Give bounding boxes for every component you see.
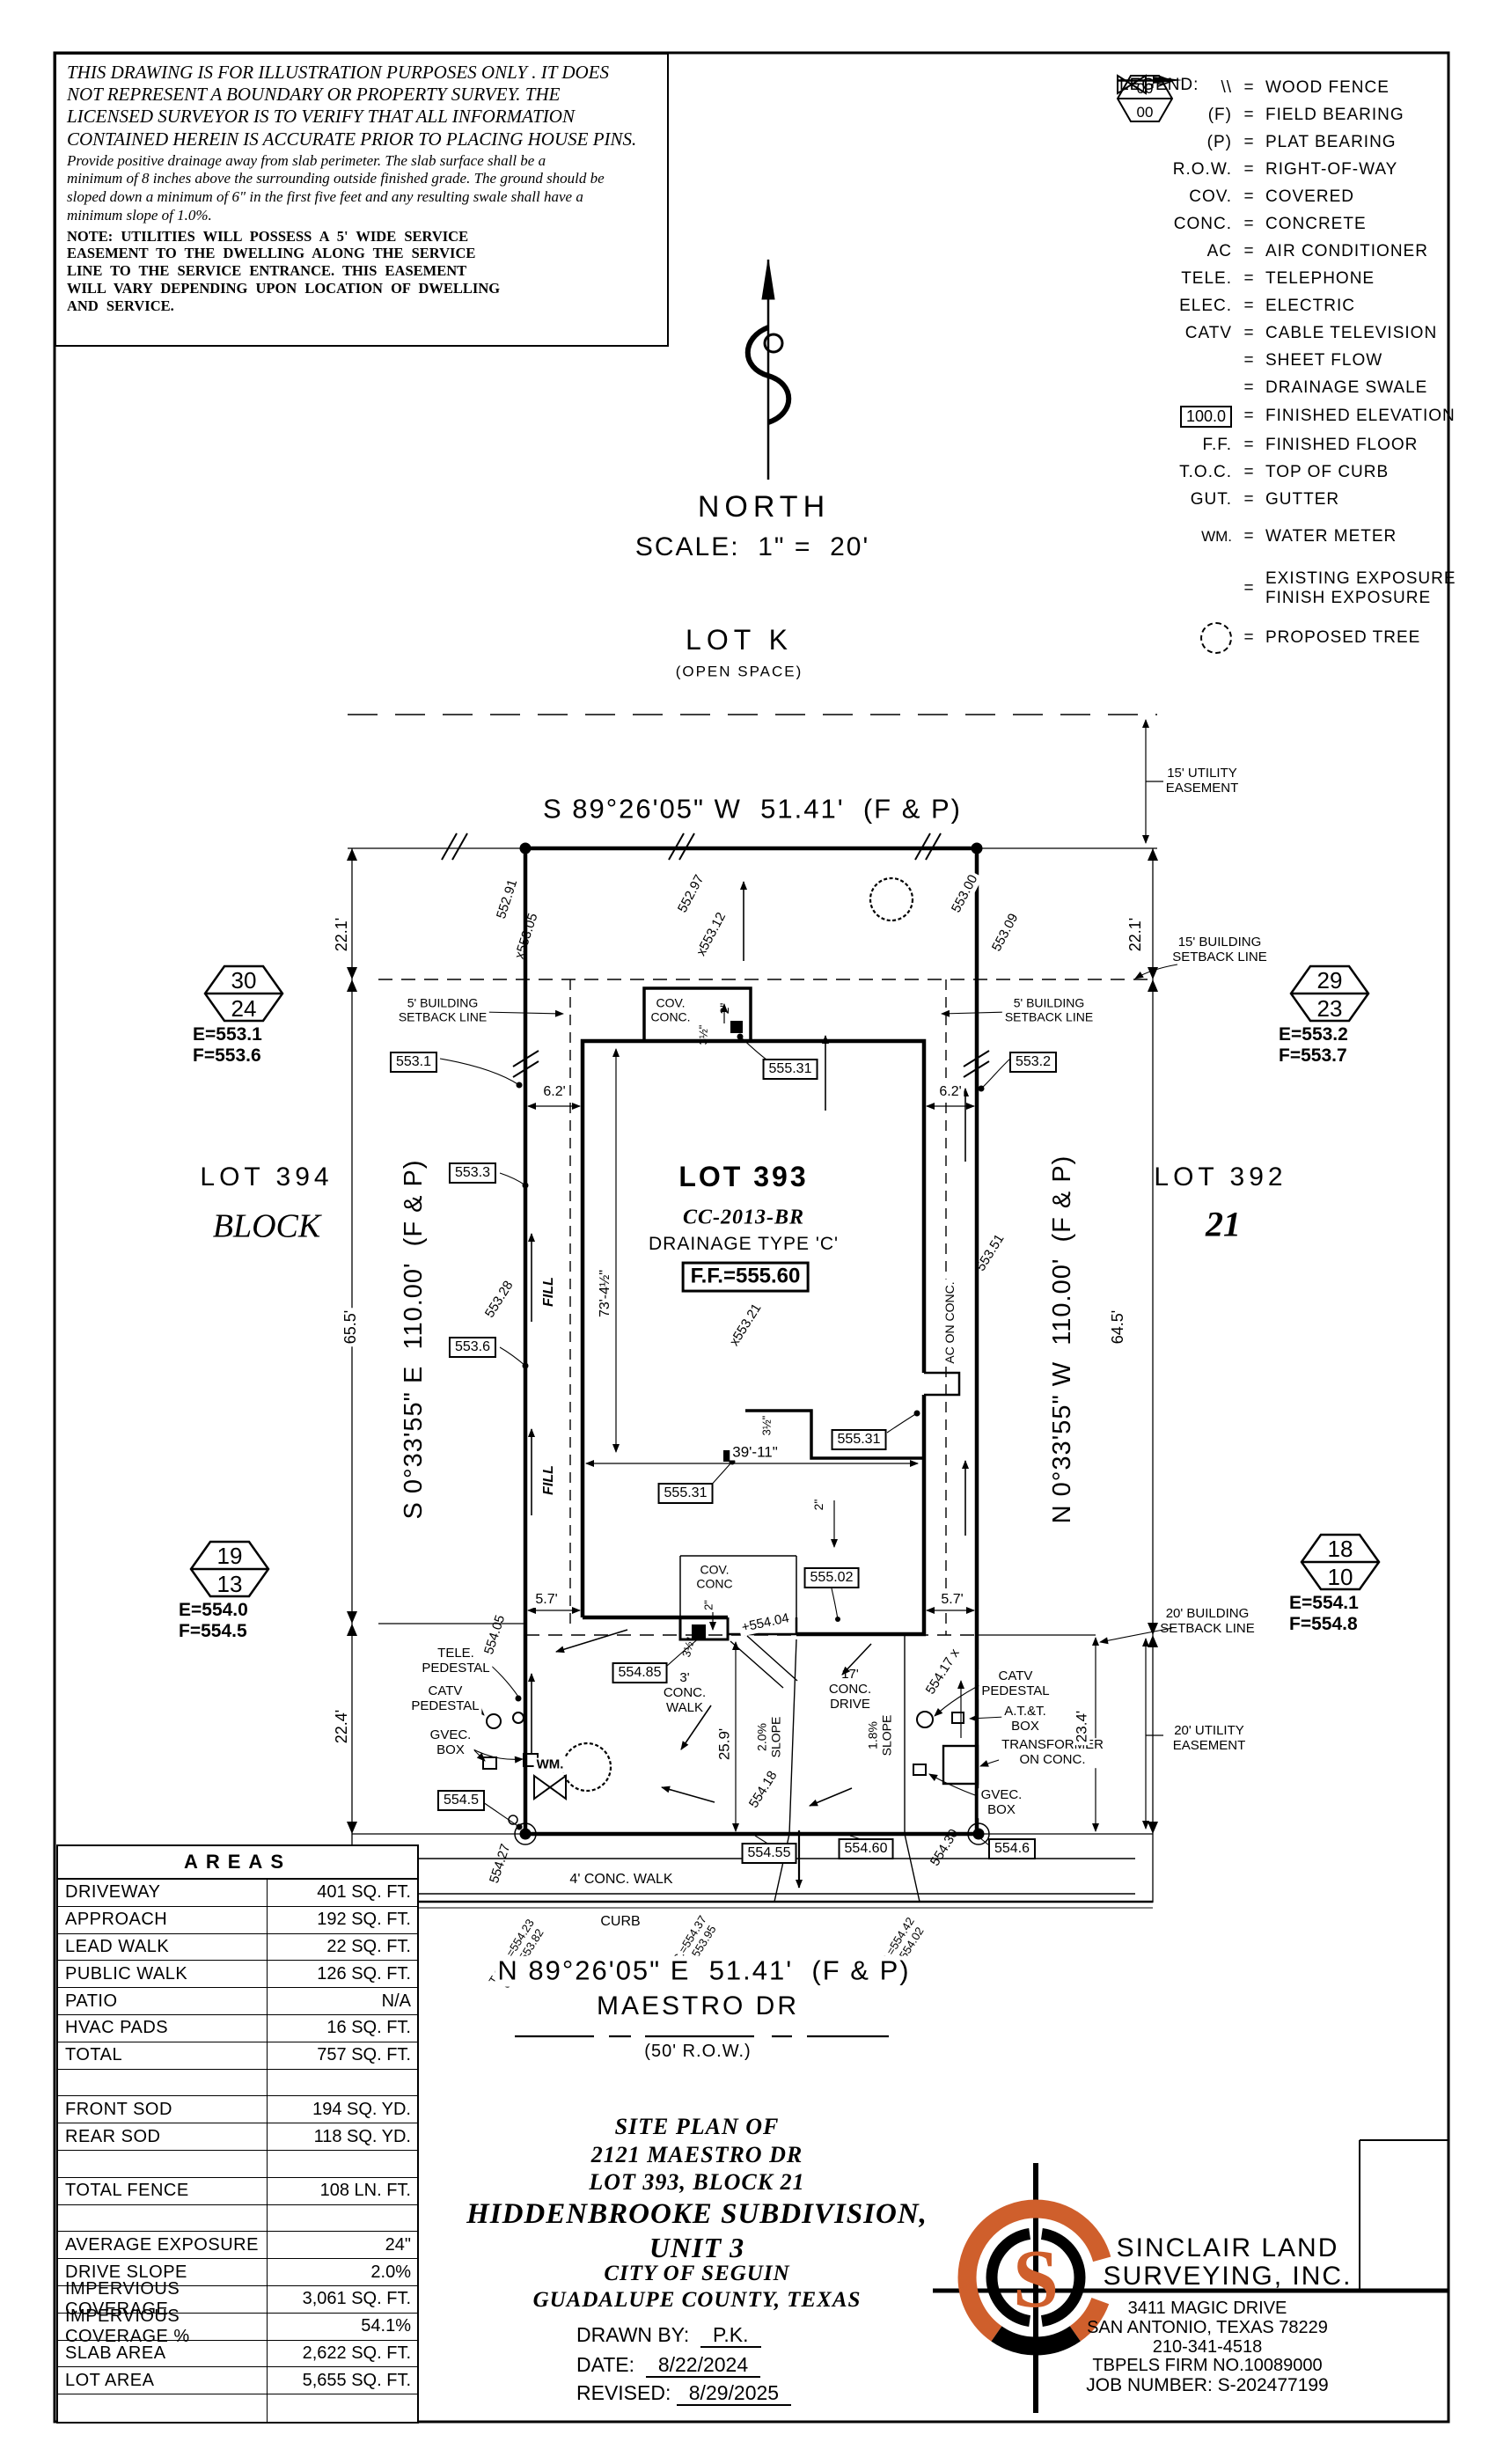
dim-65-5: 65.5' [341, 1308, 359, 1346]
areas-row-driveway: DRIVEWAY401 SQ. FT. [58, 1880, 417, 1907]
leader-dots [516, 1034, 985, 1830]
firm-phone: 210-341-4518 [1153, 2337, 1263, 2358]
house-outline [583, 988, 959, 1639]
areas-row-total-fence: TOTAL FENCE108 LN. FT. [58, 2178, 417, 2205]
svg-text:29: 29 [1317, 967, 1343, 994]
title-address: 2121 MAESTRO DR [591, 2142, 803, 2168]
spot-555-31-east: 555.31 [832, 1429, 887, 1450]
areas-row-blank-19 [58, 2394, 417, 2422]
spot-554-5: 554.5 [437, 1790, 485, 1811]
date-label: DATE: [576, 2353, 634, 2376]
title-county: GUADALUPE COUNTY, TEXAS [533, 2288, 862, 2313]
spot-553-3: 553.3 [449, 1162, 496, 1184]
areas-row-lead-walk: LEAD WALK22 SQ. FT. [58, 1934, 417, 1962]
drainage-type: DRAINAGE TYPE 'C' [649, 1234, 839, 1255]
bearing-south: N 89°26'05" E 51.41' (F & P) [495, 1956, 913, 1987]
wm-label: WM. [534, 1758, 567, 1773]
legend-row-5: CONC.=CONCRETE [1116, 210, 1461, 238]
slope-1-8: 1.8% SLOPE [866, 1712, 893, 1759]
conc-drive-17-label: 17' CONC. DRIVE [829, 1668, 871, 1712]
dim-2in-mid: 2" [812, 1500, 826, 1511]
conc-walk-3-label: 3' CONC. WALK [664, 1671, 706, 1715]
row-50-label: (50' R.O.W.) [642, 2042, 753, 2061]
revised-row: REVISED: 8/29/2025 [576, 2381, 791, 2405]
areas-row-impervious-coverage-: IMPERVIOUS COVERAGE %54.1% [58, 2314, 417, 2341]
legend-row-18: =PROPOSED TREE [1116, 617, 1461, 659]
water-meter-icon [534, 1776, 566, 1799]
drawn-by-row: DRAWN BY: P.K. [576, 2323, 761, 2347]
att-box-label: A.T.&T. BOX [1001, 1705, 1049, 1734]
legend-row-10: =SHEET FLOW [1116, 347, 1461, 374]
date-value: 8/22/2024 [646, 2353, 760, 2378]
firm-tbpels-number: TBPELS FIRM NO.10089000 [1092, 2356, 1322, 2376]
spot-555-02: 555.02 [804, 1567, 860, 1588]
lot-392-label: LOT 392 [1154, 1162, 1287, 1192]
dim-2in-front: 2" [703, 1600, 716, 1610]
bearing-east: N 0°33'55" W 110.00' (F & P) [1048, 1153, 1076, 1527]
dim-22-1-east: 22.1' [1126, 915, 1144, 954]
areas-row-average-exposure: AVERAGE EXPOSURE24" [58, 2232, 417, 2259]
site-plan-sheet: S THIS DRAWING IS FOR ILLUSTRATION PURPO… [0, 0, 1496, 2464]
building-setback-5-west-label: 5' BUILDING SETBACK LINE [396, 996, 489, 1023]
cov-conc-front-label: COV. CONC [696, 1563, 732, 1590]
lot-marker-29-23-elevations: E=553.2 F=553.7 [1279, 1024, 1348, 1067]
areas-row-slab-area: SLAB AREA2,622 SQ. FT. [58, 2341, 417, 2368]
fill-label-1: FILL [541, 1274, 557, 1309]
legend-row-11: =DRAINAGE SWALE [1116, 374, 1461, 401]
dim-22-1-west: 22.1' [333, 915, 350, 954]
legend-row-4: COV.=COVERED [1116, 183, 1461, 210]
open-space-label: (OPEN SPACE) [676, 663, 803, 679]
legend-row-13: F.F.=FINISHED FLOOR [1116, 431, 1461, 458]
bearing-west: S 0°33'55" E 110.00' (F & P) [400, 1156, 428, 1522]
title-subdivision: HIDDENBROOKE SUBDIVISION, [466, 2198, 928, 2231]
spot-554-60: 554.60 [839, 1838, 894, 1859]
dim-3half-rear: 3½" [698, 1025, 711, 1045]
legend-row-2: (P)=PLAT BEARING [1116, 128, 1461, 156]
lot-393-label: LOT 393 [678, 1162, 808, 1193]
areas-row-hvac-pads: HVAC PADS16 SQ. FT. [58, 2015, 417, 2042]
firm-address-line-2: SAN ANTONIO, TEXAS 78229 [1087, 2318, 1328, 2338]
sheet-flow-arrows [532, 882, 965, 1888]
revised-label: REVISED: [576, 2381, 671, 2404]
lot-marker-30-24-elevations: E=553.1 F=553.6 [193, 1024, 262, 1067]
svg-text:30: 30 [231, 967, 257, 994]
areas-row-patio: PATION/A [58, 1988, 417, 2015]
building-setback-15-label: 15' BUILDING SETBACK LINE [1172, 935, 1267, 965]
utility-easement-15-label: 15' UTILITY EASEMENT [1166, 766, 1239, 796]
svg-text:23: 23 [1317, 995, 1343, 1022]
dim-2in-rear: 2" [718, 1003, 732, 1015]
dim-6-2-west: 6.2' [540, 1084, 568, 1100]
lot-k-label: LOT K [686, 625, 793, 656]
catv-pedestal-east-label: CATV PEDESTAL [979, 1669, 1052, 1699]
hexagon-icon: 3024 [203, 964, 284, 1023]
legend-row-14: T.O.C.=TOP OF CURB [1116, 458, 1461, 486]
dim-22-4: 22.4' [333, 1707, 350, 1746]
areas-row-lot-area: LOT AREA5,655 SQ. FT. [58, 2367, 417, 2394]
date-row: DATE: 8/22/2024 [576, 2353, 760, 2377]
catv-pedestal-west-label: CATV PEDESTAL [408, 1684, 481, 1714]
lot-394-label: LOT 394 [200, 1162, 333, 1192]
areas-table-title: AREAS [58, 1846, 417, 1880]
transformer-label: TRANSFORMER ON CONC. [999, 1738, 1106, 1768]
cov-conc-rear-label: COV. CONC. [650, 996, 690, 1023]
areas-row-approach: APPROACH192 SQ. FT. [58, 1907, 417, 1934]
gvec-box-west-label: GVEC. BOX [428, 1728, 474, 1758]
svg-text:18: 18 [1328, 1536, 1353, 1562]
disclaimer-paragraph-2: Provide positive drainage away from slab… [67, 152, 656, 225]
north-label: NORTH [698, 490, 830, 524]
legend: LEGEND: \\=WOOD FENCE(F)=FIELD BEARING(P… [1116, 74, 1461, 659]
disclaimer-note: NOTE: UTILITIES WILL POSSESS A 5' WIDE S… [67, 228, 656, 315]
legend-row-16: WM.=WATER METER [1116, 513, 1461, 561]
areas-table: AREAS DRIVEWAY401 SQ. FT.APPROACH192 SQ.… [56, 1844, 419, 2424]
lot-marker-19-13-elevations: E=554.0 F=554.5 [179, 1600, 248, 1642]
areas-row-rear-sod: REAR SOD118 SQ. YD. [58, 2123, 417, 2151]
areas-row-blank-10 [58, 2151, 417, 2178]
areas-row-blank-7 [58, 2070, 417, 2097]
spot-554-85: 554.85 [612, 1662, 668, 1683]
spot-554-55: 554.55 [742, 1843, 797, 1864]
svg-text:19: 19 [217, 1543, 243, 1569]
spot-553-6: 553.6 [449, 1337, 496, 1358]
utility-easement-20-label: 20' UTILITY EASEMENT [1173, 1724, 1246, 1754]
proposed-tree-icon [1200, 622, 1232, 654]
firm-name-line-2: SURVEYING, INC. [1104, 2262, 1353, 2292]
ff-elevation: F.F.=555.60 [682, 1262, 810, 1293]
legend-row-15: GUT.=GUTTER [1116, 486, 1461, 513]
svg-text:10: 10 [1328, 1564, 1353, 1590]
building-setback-5-east-label: 5' BUILDING SETBACK LINE [1002, 996, 1096, 1023]
title-site-plan-of: SITE PLAN OF [615, 2114, 780, 2140]
proposed-tree-rear-icon [870, 878, 913, 920]
revised-value: 8/29/2025 [677, 2381, 791, 2406]
proposed-tree-front-icon [563, 1743, 611, 1791]
legend-row-6: AC=AIR CONDITIONER [1116, 238, 1461, 265]
dim-25-9: 25.9' [715, 1726, 732, 1763]
dim-3half-step: 3½" [761, 1416, 774, 1436]
dim-6-2-east: 6.2' [936, 1084, 964, 1100]
areas-row-blank-12 [58, 2205, 417, 2233]
logo-s-letter: S [1013, 2233, 1059, 2325]
hexagon-icon: 1810 [1300, 1533, 1381, 1591]
fill-label-2: FILL [541, 1463, 557, 1498]
north-arrow [748, 260, 789, 480]
disclaimer-paragraph-1: THIS DRAWING IS FOR ILLUSTRATION PURPOSE… [67, 62, 656, 150]
svg-text:13: 13 [217, 1571, 243, 1597]
title-unit: UNIT 3 [649, 2232, 744, 2264]
dim-23-4: 23.4' [1073, 1708, 1089, 1745]
curb-label: CURB [598, 1914, 642, 1930]
title-city: CITY OF SEGUIN [604, 2262, 789, 2286]
firm-job-number: JOB NUMBER: S-202477199 [1086, 2375, 1328, 2396]
svg-text:24: 24 [231, 995, 257, 1022]
drawn-by-value: P.K. [700, 2323, 761, 2348]
legend-row-9: CATV=CABLE TELEVISION [1116, 319, 1461, 347]
transformer-icon [943, 1746, 978, 1784]
maestro-dr-label: MAESTRO DR [594, 1991, 802, 2021]
dim-39-11: 39'-11" [730, 1443, 781, 1460]
legend-row-7: TELE.=TELEPHONE [1116, 265, 1461, 292]
block-21-label: 21 [1206, 1206, 1241, 1245]
building-setback-20-label: 20' BUILDING SETBACK LINE [1160, 1607, 1255, 1637]
ac-on-conc-label: AC ON CONC. [943, 1279, 957, 1366]
slope-2-0: 2.0% SLOPE [755, 1714, 782, 1761]
exposure-hexagon-icon: 0000 [1116, 74, 1174, 123]
bearing-north: S 89°26'05" W 51.41' (F & P) [540, 795, 964, 825]
dim-5-7-east: 5.7' [938, 1592, 965, 1608]
hexagon-icon: 2923 [1289, 964, 1370, 1023]
dim-5-7-west: 5.7' [532, 1592, 560, 1608]
gvec-box-east-label: GVEC. BOX [979, 1788, 1025, 1818]
drawn-by-label: DRAWN BY: [576, 2323, 689, 2346]
svg-text:00: 00 [1137, 80, 1154, 97]
spot-553-1: 553.1 [390, 1052, 437, 1073]
lot-marker-18-10-elevations: E=554.1 F=554.8 [1289, 1593, 1359, 1635]
areas-row-front-sod: FRONT SOD194 SQ. YD. [58, 2096, 417, 2123]
legend-row-8: ELEC.=ELECTRIC [1116, 292, 1461, 319]
cc-2013-br: CC-2013-BR [683, 1206, 804, 1230]
water-meter-icon: WM. [1201, 528, 1232, 546]
conc-walk-4-label: 4' CONC. WALK [567, 1872, 675, 1888]
disclaimer-box: THIS DRAWING IS FOR ILLUSTRATION PURPOSE… [55, 53, 669, 347]
block-label: BLOCK [213, 1208, 320, 1246]
firm-address-line-1: 3411 MAGIC DRIVE [1128, 2299, 1287, 2319]
title-lot-block: LOT 393, BLOCK 21 [589, 2169, 804, 2196]
spot-555-31-center: 555.31 [658, 1483, 714, 1504]
areas-row-public-walk: PUBLIC WALK126 SQ. FT. [58, 1961, 417, 1988]
areas-row-total: TOTAL757 SQ. FT. [58, 2042, 417, 2070]
legend-row-12: 100.0=FINISHED ELEVATION [1116, 401, 1461, 431]
hexagon-icon: 1913 [189, 1540, 270, 1598]
dim-64-5: 64.5' [1109, 1308, 1126, 1346]
firm-name-line-1: SINCLAIR LAND [1117, 2233, 1339, 2263]
spot-553-2: 553.2 [1009, 1052, 1057, 1073]
spot-554-6: 554.6 [988, 1838, 1036, 1859]
legend-row-17: 0000=EXISTING EXPOSURE FINISH EXPOSURE [1116, 561, 1461, 617]
dim-73-4half: 73'-4½" [598, 1267, 613, 1320]
scale-label: SCALE: 1" = 20' [635, 532, 869, 562]
svg-text:00: 00 [1137, 104, 1154, 121]
legend-row-3: R.O.W.=RIGHT-OF-WAY [1116, 156, 1461, 183]
spot-555-31-rear: 555.31 [763, 1059, 818, 1080]
